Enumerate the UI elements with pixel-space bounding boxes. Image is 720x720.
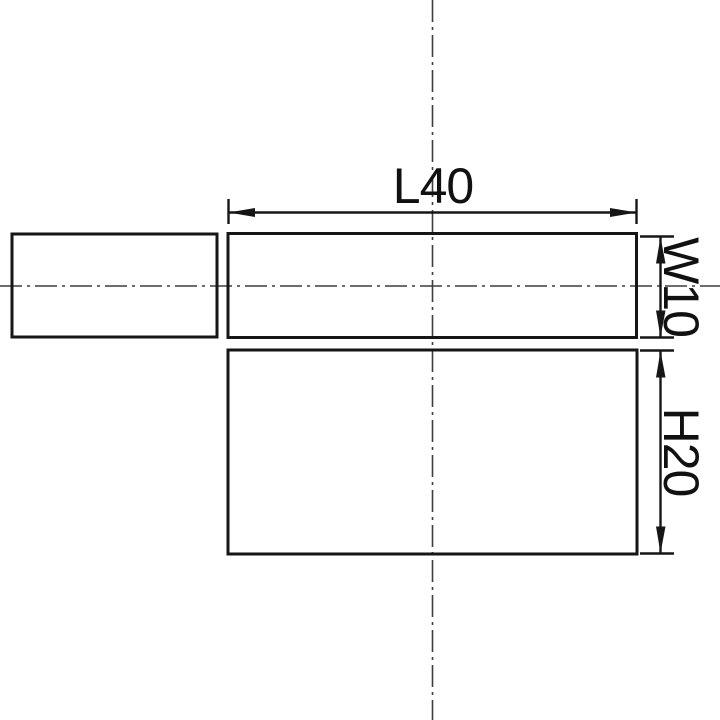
length-dimension-label: L40	[393, 158, 473, 214]
center-lines	[0, 0, 720, 720]
view-outlines	[12, 234, 637, 555]
front-view-outline	[228, 350, 637, 554]
arrowhead-down-icon	[656, 527, 666, 554]
dimension-width: W10	[640, 237, 709, 338]
technical-drawing-canvas: L40 W10 H20	[0, 0, 720, 720]
height-dimension-label: H20	[653, 408, 709, 497]
arrowhead-left-icon	[229, 208, 256, 217]
arrowhead-up-icon	[656, 351, 666, 378]
arrowhead-right-icon	[610, 208, 637, 217]
technical-drawing-page: L40 W10 H20	[0, 0, 720, 720]
width-dimension-label: W10	[653, 237, 709, 337]
dimension-height: H20	[640, 351, 709, 554]
